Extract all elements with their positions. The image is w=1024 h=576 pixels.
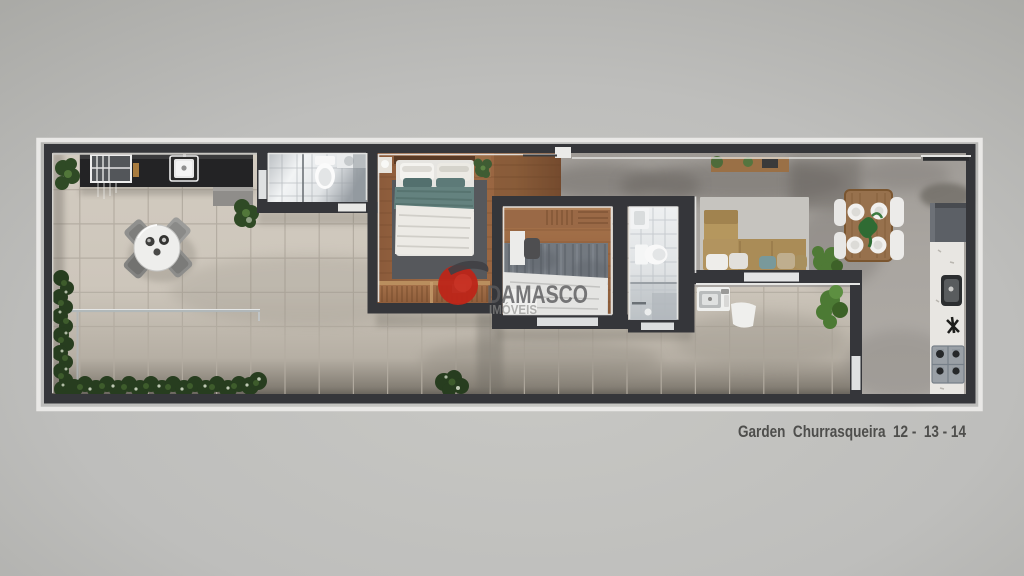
svg-text:Garden Churrasqueira 12 - 1: Garden Churrasqueira 12 - 13 - 14 xyxy=(738,422,966,441)
svg-text:IMÓVEIS: IMÓVEIS xyxy=(489,302,537,317)
